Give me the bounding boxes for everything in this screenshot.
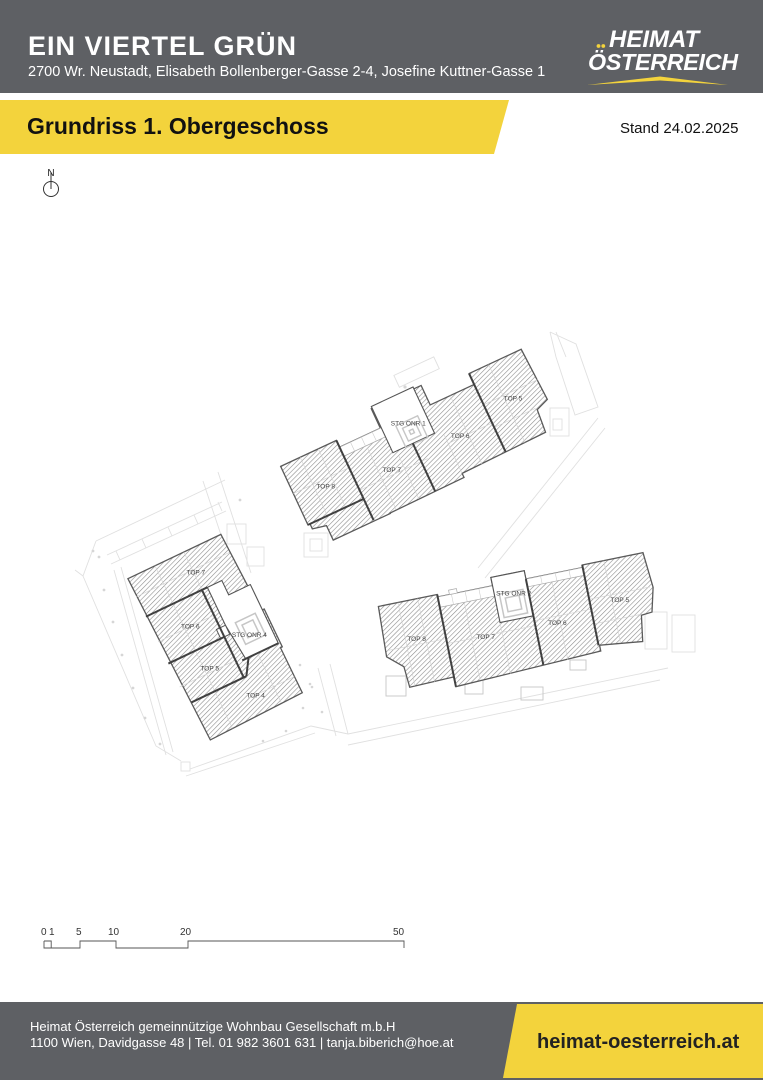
svg-text:10: 10: [108, 927, 120, 938]
svg-text:TOP 6: TOP 6: [181, 623, 200, 630]
svg-text:TOP 5: TOP 5: [504, 396, 523, 403]
svg-text:TOP 7: TOP 7: [383, 467, 402, 474]
svg-text:STG ONR 4: STG ONR 4: [232, 632, 267, 639]
svg-text:STG ONR 2: STG ONR 2: [496, 590, 531, 597]
svg-text:TOP 8: TOP 8: [407, 636, 426, 643]
svg-text:TOP 6: TOP 6: [451, 433, 470, 440]
svg-text:TOP 5: TOP 5: [200, 666, 219, 673]
svg-text:TOP 4: TOP 4: [246, 692, 265, 699]
svg-text:1: 1: [49, 927, 55, 938]
svg-text:5: 5: [76, 927, 82, 938]
svg-text:0: 0: [41, 927, 47, 938]
svg-text:STG ONR 1: STG ONR 1: [391, 421, 426, 428]
svg-text:TOP 5: TOP 5: [611, 597, 630, 604]
svg-text:N: N: [47, 168, 54, 179]
svg-text:TOP 6: TOP 6: [548, 620, 567, 627]
svg-text:TOP 8: TOP 8: [316, 484, 335, 491]
svg-text:TOP 7: TOP 7: [187, 569, 206, 576]
svg-text:20: 20: [180, 927, 192, 938]
svg-text:50: 50: [393, 927, 405, 938]
svg-text:TOP 7: TOP 7: [476, 634, 495, 641]
